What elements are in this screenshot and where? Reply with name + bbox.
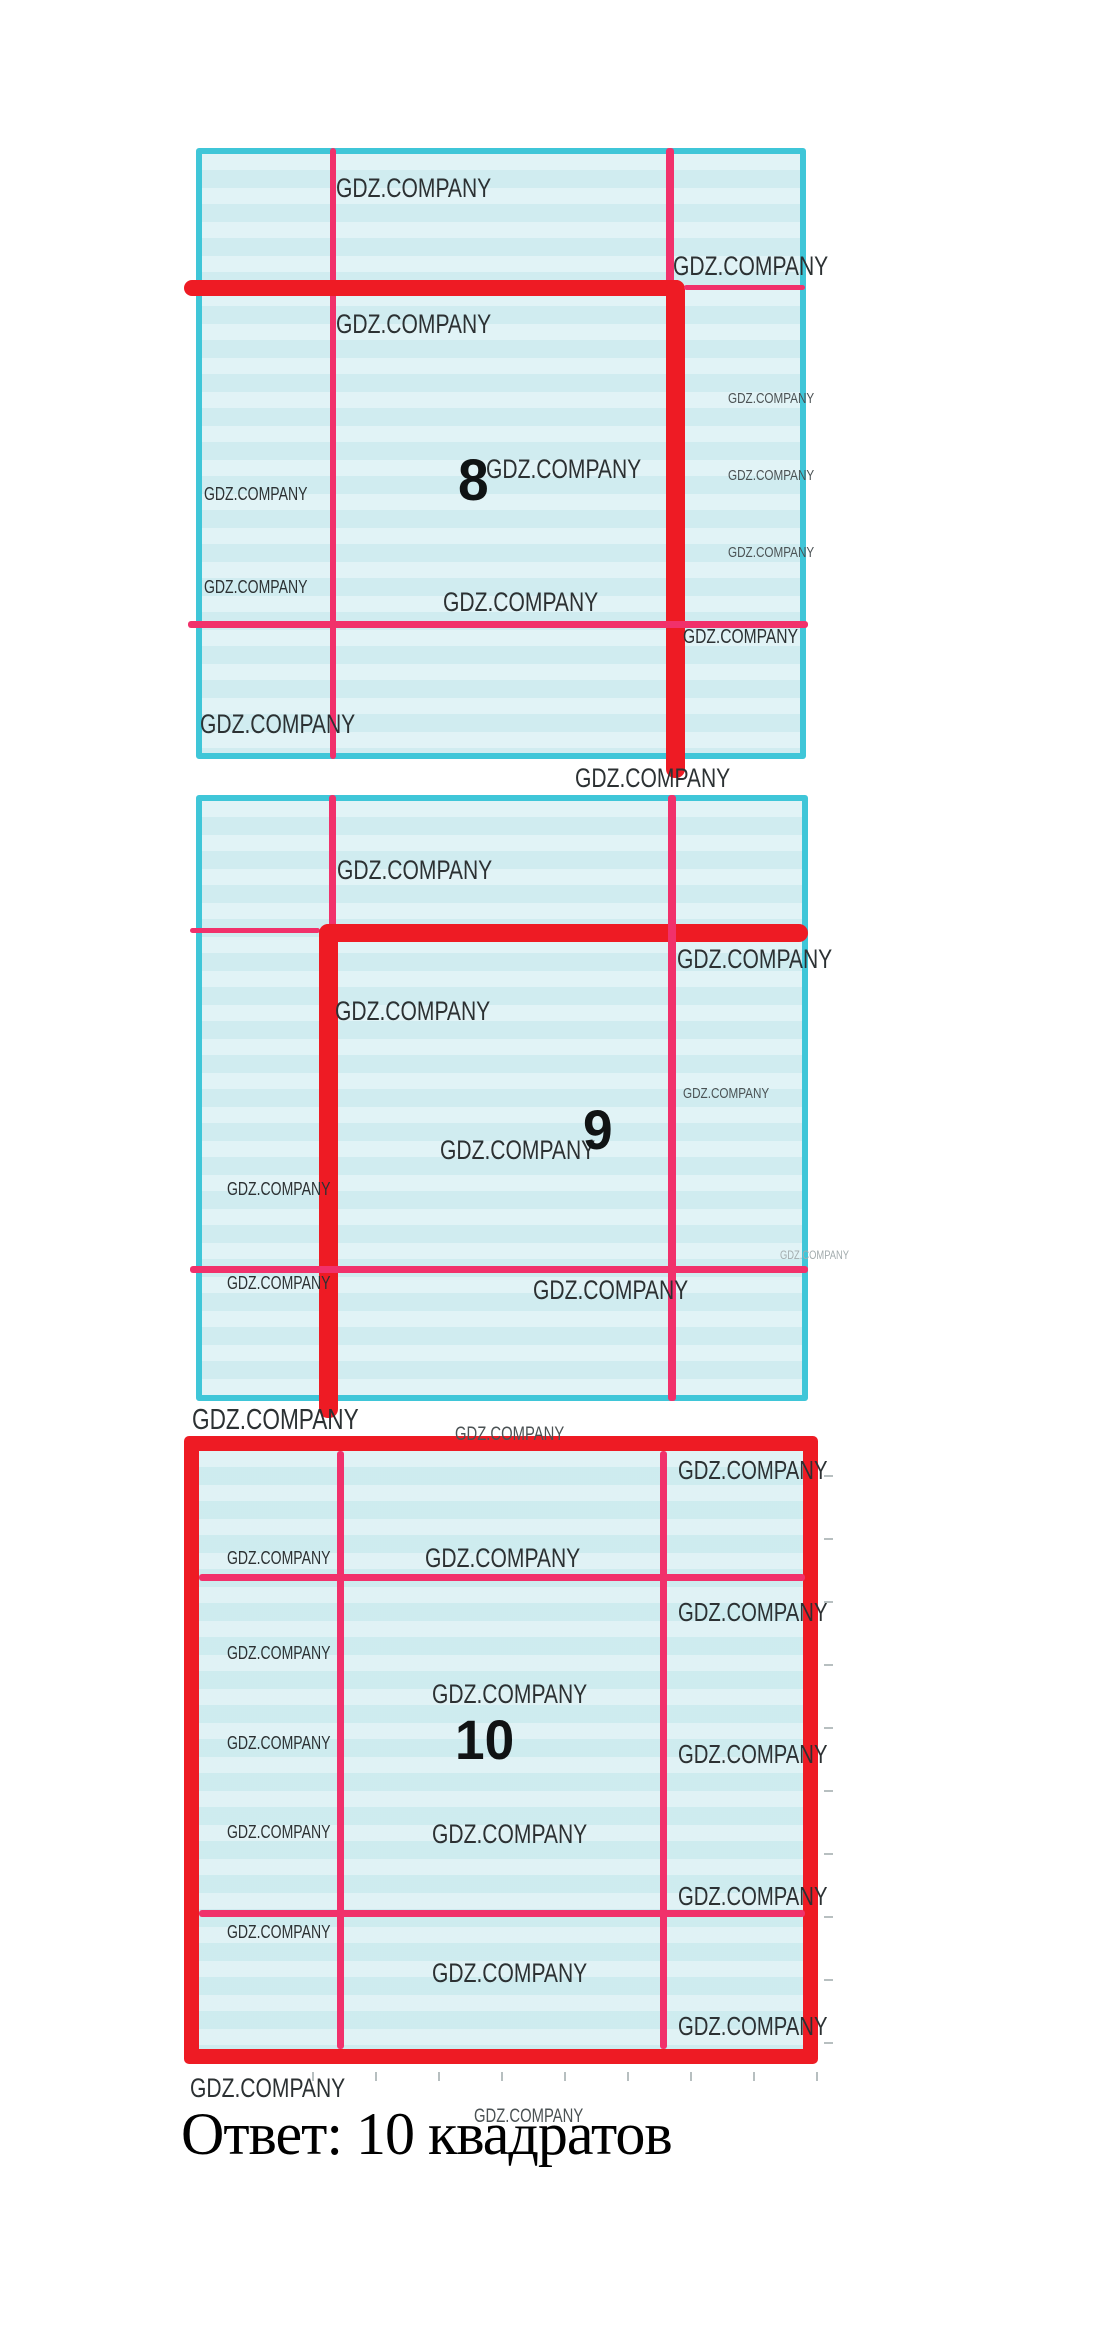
watermark-text: GDZ.COMPANY (227, 1273, 330, 1293)
watermark-text: GDZ.COMPANY (678, 1456, 827, 1485)
watermark-text: GDZ.COMPANY (190, 2073, 345, 2103)
watermark-text: GDZ.COMPANY (200, 709, 355, 739)
watermark-text: GDZ.COMPANY (432, 1958, 587, 1988)
watermark-text: GDZ.COMPANY (678, 1882, 827, 1911)
watermark-text: GDZ.COMPANY (227, 1733, 330, 1753)
ruler-tick (824, 1853, 833, 1855)
ruler-tick (824, 1790, 833, 1792)
watermark-text: GDZ.COMPANY (728, 468, 814, 485)
watermark-text: GDZ.COMPANY (673, 251, 828, 281)
watermark-text: GDZ.COMPANY (455, 1424, 564, 1445)
solution-figures: GDZ.COMPANYGDZ.COMPANYGDZ.COMPANYGDZ.COM… (0, 0, 1094, 2331)
watermark-text: GDZ.COMPANY (533, 1275, 688, 1305)
watermark-text: GDZ.COMPANY (192, 1404, 359, 1436)
watermark-text: GDZ.COMPANY (683, 1086, 769, 1103)
pink-grid-line (684, 285, 805, 290)
pink-grid-line (199, 1574, 805, 1581)
figure-number: 8 (458, 452, 489, 510)
watermark-text: GDZ.COMPANY (780, 1249, 849, 1262)
watermark-text: GDZ.COMPANY (336, 309, 491, 339)
watermark-text: GDZ.COMPANY (337, 855, 492, 885)
figure-number: 9 (583, 1102, 613, 1158)
ruler-tick (824, 1916, 833, 1918)
watermark-text: GDZ.COMPANY (204, 484, 307, 504)
ruler-tick (438, 2072, 440, 2081)
watermark-text: GDZ.COMPANY (486, 454, 641, 484)
ruler-tick (824, 1538, 833, 1540)
pink-grid-line (660, 1451, 667, 2049)
watermark-text: GDZ.COMPANY (432, 1819, 587, 1849)
watermark-text: GDZ.COMPANY (677, 944, 832, 974)
pink-grid-line (329, 795, 336, 929)
watermark-text: GDZ.COMPANY (443, 587, 598, 617)
page: GDZ.COMPANYGDZ.COMPANYGDZ.COMPANYGDZ.COM… (0, 0, 1094, 2331)
pink-grid-line (330, 148, 336, 759)
watermark-text: GDZ.COMPANY (728, 391, 814, 408)
watermark-text: GDZ.COMPANY (440, 1135, 595, 1165)
ruler-tick (824, 1727, 833, 1729)
red-highlight-line (184, 280, 684, 296)
ruler-tick (501, 2072, 503, 2081)
watermark-text: GDZ.COMPANY (432, 1679, 587, 1709)
ruler-tick (824, 1664, 833, 1666)
pink-grid-line (337, 1451, 344, 2049)
ruler-tick (690, 2072, 692, 2081)
watermark-text: GDZ.COMPANY (335, 996, 490, 1026)
pink-grid-line (668, 795, 676, 1401)
watermark-text: GDZ.COMPANY (425, 1543, 580, 1573)
watermark-text: GDZ.COMPANY (227, 1548, 330, 1568)
ruler-tick (816, 2072, 818, 2081)
watermark-text: GDZ.COMPANY (683, 626, 798, 648)
pink-grid-line (190, 928, 320, 933)
watermark-text: GDZ.COMPANY (204, 577, 307, 597)
watermark-text: GDZ.COMPANY (227, 1643, 330, 1663)
answer-text: Ответ: 10 квадратов (181, 2100, 672, 2169)
ruler-tick (627, 2072, 629, 2081)
pink-grid-line (190, 1266, 808, 1273)
ruler-tick (564, 2072, 566, 2081)
figure-number: 10 (455, 1712, 514, 1768)
ruler-tick (824, 2042, 833, 2044)
watermark-text: GDZ.COMPANY (678, 1740, 827, 1769)
ruler-tick (753, 2072, 755, 2081)
watermark-text: GDZ.COMPANY (227, 1822, 330, 1842)
ruler-tick (375, 2072, 377, 2081)
watermark-text: GDZ.COMPANY (678, 2012, 827, 2041)
watermark-text: GDZ.COMPANY (728, 545, 814, 562)
watermark-text: GDZ.COMPANY (227, 1179, 330, 1199)
red-highlight-line (666, 280, 685, 778)
watermark-text: GDZ.COMPANY (336, 173, 491, 203)
watermark-text: GDZ.COMPANY (575, 763, 730, 793)
watermark-text: GDZ.COMPANY (678, 1598, 827, 1627)
red-highlight-line (320, 924, 808, 942)
watermark-text: GDZ.COMPANY (227, 1922, 330, 1942)
ruler-tick (824, 1979, 833, 1981)
